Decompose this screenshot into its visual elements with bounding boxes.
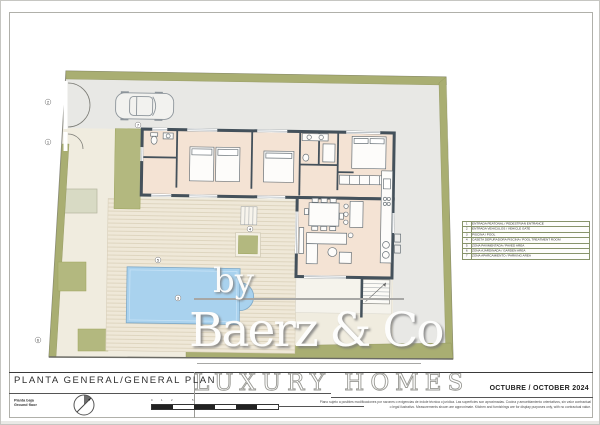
marker-2: 2	[45, 99, 51, 105]
brand-by: by	[213, 261, 254, 301]
legend-num: 2	[466, 228, 468, 231]
marker-7: 7	[135, 122, 141, 128]
frame-bottom	[9, 417, 593, 418]
legend-num: 7	[466, 255, 468, 258]
legend-label: PISCINA / POOL	[472, 233, 495, 236]
legend-label: ZONA PAVIMENTADA / PAVED AREA	[472, 244, 524, 247]
legend-label: ENTRADA VEHICULOS / VEHICLE GATE	[472, 228, 530, 231]
legend-table: 1 ENTRADA PEATONAL / PEDESTRIAN ENTRANCE…	[462, 221, 590, 260]
sheet-date: OCTUBRE / OCTOBER 2024	[490, 385, 589, 392]
legend-label: ZONA APARCAMIENTO / PARKING AREA	[472, 255, 531, 258]
planter-left-squares	[58, 262, 86, 291]
legend-label: ENTRADA PEATONAL / PEDESTRIAN ENTRANCE	[472, 223, 544, 226]
marker-3: 3	[175, 295, 181, 301]
legend-num: 5	[466, 244, 468, 247]
planter-bottom-left	[78, 329, 108, 351]
legend-row: 7 ZONA APARCAMIENTO / PARKING AREA	[463, 254, 589, 258]
floor-label-en: Ground floor	[14, 403, 37, 408]
marker-6: 6	[35, 337, 41, 343]
legend-num: 1	[466, 223, 468, 226]
disclaimer-text: Plano sujeto a posibles modificaciones p…	[36, 400, 591, 410]
planter-house-west	[114, 129, 141, 209]
legend-label: CASETA DEPURADORA PISCINA / POOL TREATME…	[472, 239, 561, 242]
brand-tagline: LUXURY HOMES	[194, 372, 429, 395]
brand-name: Baerz & Co	[189, 307, 429, 354]
sheet-edge-shadow	[1, 421, 600, 425]
titleband-rule-right	[331, 397, 593, 398]
titleband-rule-left	[9, 393, 331, 394]
deck-steps	[241, 207, 257, 225]
parked-car	[115, 91, 173, 121]
disclaimer-line2: o legal ilustrativo. Measurements shown …	[36, 405, 591, 410]
legend-num: 3	[466, 233, 468, 236]
plan-sheet: 2 1 7 5 3 4 6 1 ENTRADA PEATONAL / PEDES…	[0, 0, 600, 425]
titleband-rule-top	[9, 372, 593, 373]
sheet-title: PLANTA GENERAL/GENERAL PLAN	[14, 375, 216, 386]
floor-label: Planta baja Ground floor	[14, 398, 37, 407]
legend-label: ZONA AJARDINADA / GARDEN AREA	[472, 250, 525, 253]
legend-num: 6	[466, 250, 468, 253]
pool-equipment-box	[235, 233, 260, 257]
legend-num: 4	[466, 239, 468, 242]
marker-5: 5	[155, 257, 161, 263]
brand-rule-bottom	[197, 363, 421, 364]
marker-4: 4	[247, 226, 253, 232]
garden-shed	[63, 189, 97, 213]
marker-1: 1	[45, 139, 51, 145]
